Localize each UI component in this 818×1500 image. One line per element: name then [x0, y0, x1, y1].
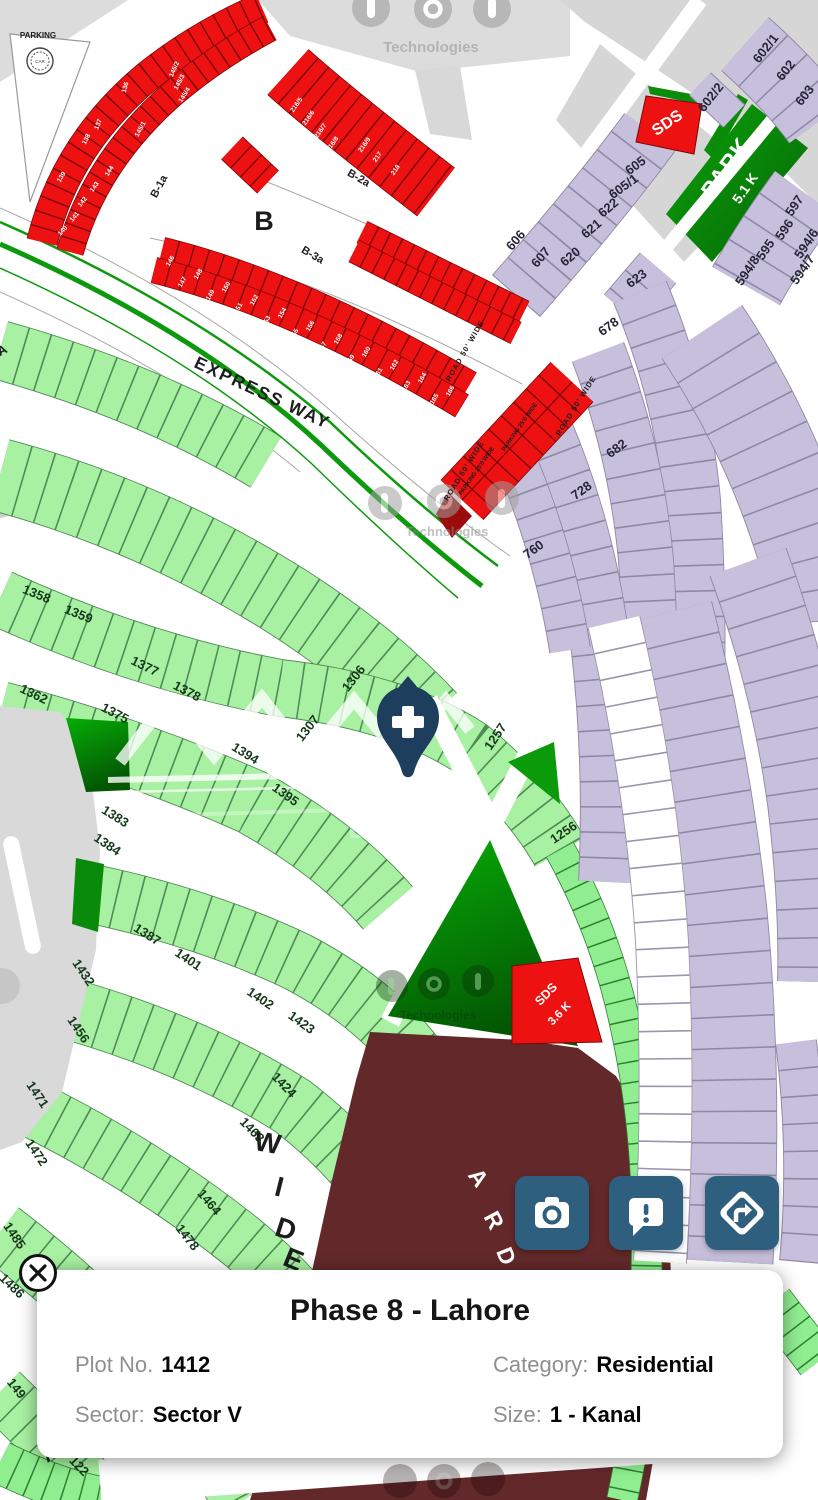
page-title: Phase 8 - Lahore: [37, 1294, 783, 1328]
ioi-watermark-mid: Technologies: [368, 481, 519, 539]
svg-text:B-3a: B-3a: [299, 244, 326, 267]
watermark-text: Technologies: [383, 39, 479, 56]
svg-text:I: I: [272, 1171, 287, 1203]
pin-plus-icon: [392, 716, 424, 728]
size-label: Size:: [493, 1402, 542, 1427]
size-value: 1 - Kanal: [550, 1402, 642, 1427]
svg-text:678: 678: [595, 314, 621, 339]
close-icon: [27, 1262, 49, 1284]
watermark-text: Technologies: [400, 1008, 477, 1022]
red-plot-band[interactable]: [232, 148, 268, 182]
plot-no-label: Plot No.: [75, 1352, 153, 1377]
svg-text:1402: 1402: [244, 984, 276, 1013]
category-label: Category:: [493, 1352, 588, 1377]
close-button[interactable]: [19, 1254, 57, 1292]
camera-button[interactable]: [515, 1176, 589, 1250]
info-row: Plot No.1412 Category:Residential: [37, 1352, 783, 1382]
watermark-text: Technologies: [406, 524, 489, 539]
plot-info-card: Phase 8 - Lahore Plot No.1412 Category:R…: [37, 1270, 783, 1458]
svg-text:1383: 1383: [99, 802, 131, 830]
watermark-dha-echo: DHA Plus: [348, 810, 488, 845]
sds-plot-bottom[interactable]: [512, 958, 602, 1044]
svg-text:B: B: [254, 206, 274, 236]
app-screen: Technologies Technologies Technologies D…: [0, 0, 818, 1500]
report-icon: [609, 1176, 683, 1250]
category-value: Residential: [596, 1352, 713, 1377]
ioi-watermark-bottom: [383, 1462, 505, 1498]
sector-label: Sector:: [75, 1402, 145, 1427]
directions-button[interactable]: [705, 1176, 779, 1250]
svg-text:B-1a: B-1a: [148, 172, 170, 199]
camera-icon: [515, 1176, 589, 1250]
report-button[interactable]: [609, 1176, 683, 1250]
svg-text:1423: 1423: [286, 1008, 318, 1037]
sector-value: Sector V: [153, 1402, 242, 1427]
plot-no-value: 1412: [161, 1352, 210, 1377]
parking-label: PARKING: [20, 31, 56, 40]
svg-text:D: D: [272, 1211, 301, 1247]
directions-icon: [705, 1176, 779, 1250]
car-label: CAR: [35, 59, 45, 64]
info-row: Sector:Sector V Size:1 - Kanal: [37, 1402, 783, 1432]
